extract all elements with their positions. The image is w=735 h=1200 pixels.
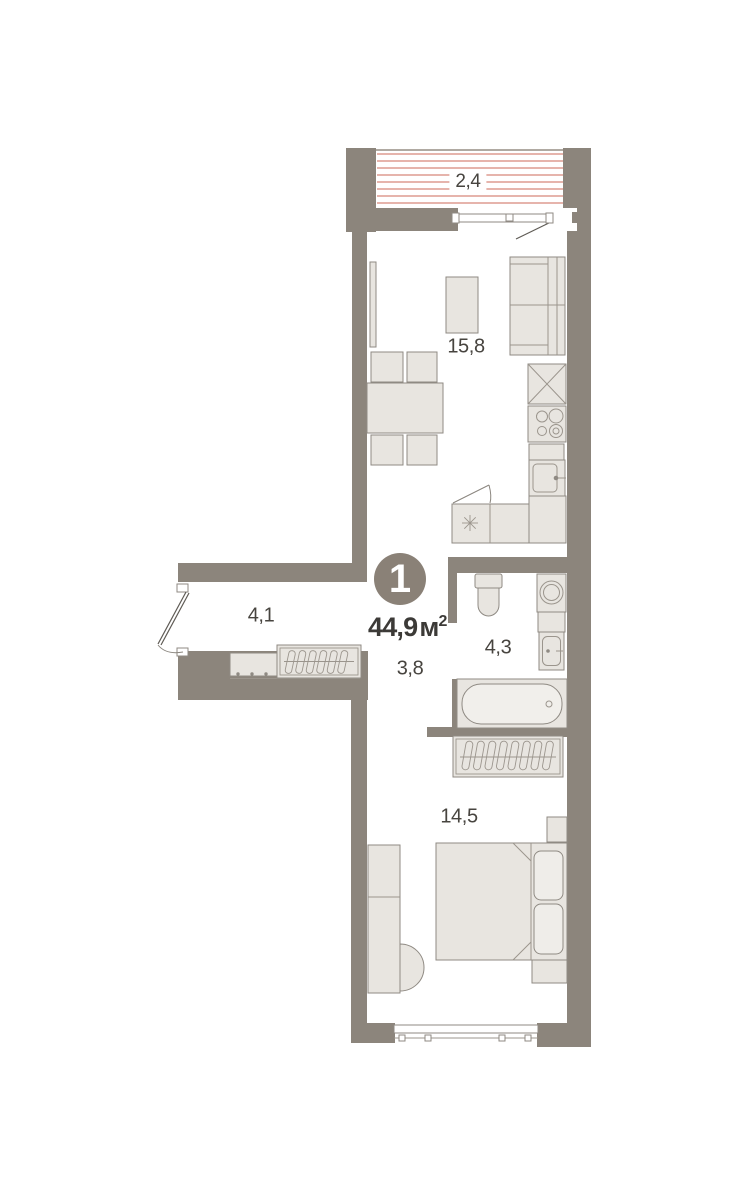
room-label-hallway: 4,1 (248, 605, 275, 628)
total-area-label: 44,9м2 (368, 612, 447, 643)
dishwasher-star-icon (462, 515, 478, 531)
bedroom-wardrobe-icon (453, 736, 563, 777)
coffee-table-icon (446, 277, 478, 333)
room-label-bedroom: 14,5 (440, 806, 477, 829)
tv-icon (370, 262, 376, 347)
bathtub-icon (457, 679, 567, 728)
nightstand-bottom-icon (532, 960, 567, 983)
dining-table-icon (367, 352, 443, 465)
bedroom-window-icon (394, 1025, 538, 1041)
nightstand-top-icon (547, 817, 567, 842)
floor-plan: 2,4 15,8 4,1 3,8 4,3 14,5 1 44,9м2 (0, 0, 735, 1200)
room-label-balcony: 2,4 (449, 171, 486, 193)
fridge-icon (528, 364, 566, 404)
toilet-icon (475, 574, 502, 616)
room-label-living-kitchen: 15,8 (447, 336, 484, 359)
total-area-value: 44,9 (368, 612, 417, 642)
unit-number-badge: 1 (374, 553, 426, 605)
balcony-window-icon (452, 213, 553, 223)
sofa-icon (510, 257, 565, 355)
total-area-unit: м (419, 612, 438, 642)
washbasin-icon (539, 632, 564, 670)
room-label-bathroom: 4,3 (485, 637, 512, 660)
room-label-corridor: 3,8 (397, 658, 424, 681)
kitchen-sink-icon (529, 460, 566, 496)
floor-plan-drawing (0, 0, 735, 1200)
entrance-door (158, 584, 189, 656)
washing-machine-icon (537, 574, 566, 632)
stove-icon (528, 406, 566, 442)
desk-chair-icon (400, 944, 424, 991)
bed-icon (436, 843, 567, 960)
desk-icon (368, 845, 400, 993)
total-area-sup: 2 (439, 613, 448, 630)
hallway-wardrobe-icon (277, 645, 361, 678)
